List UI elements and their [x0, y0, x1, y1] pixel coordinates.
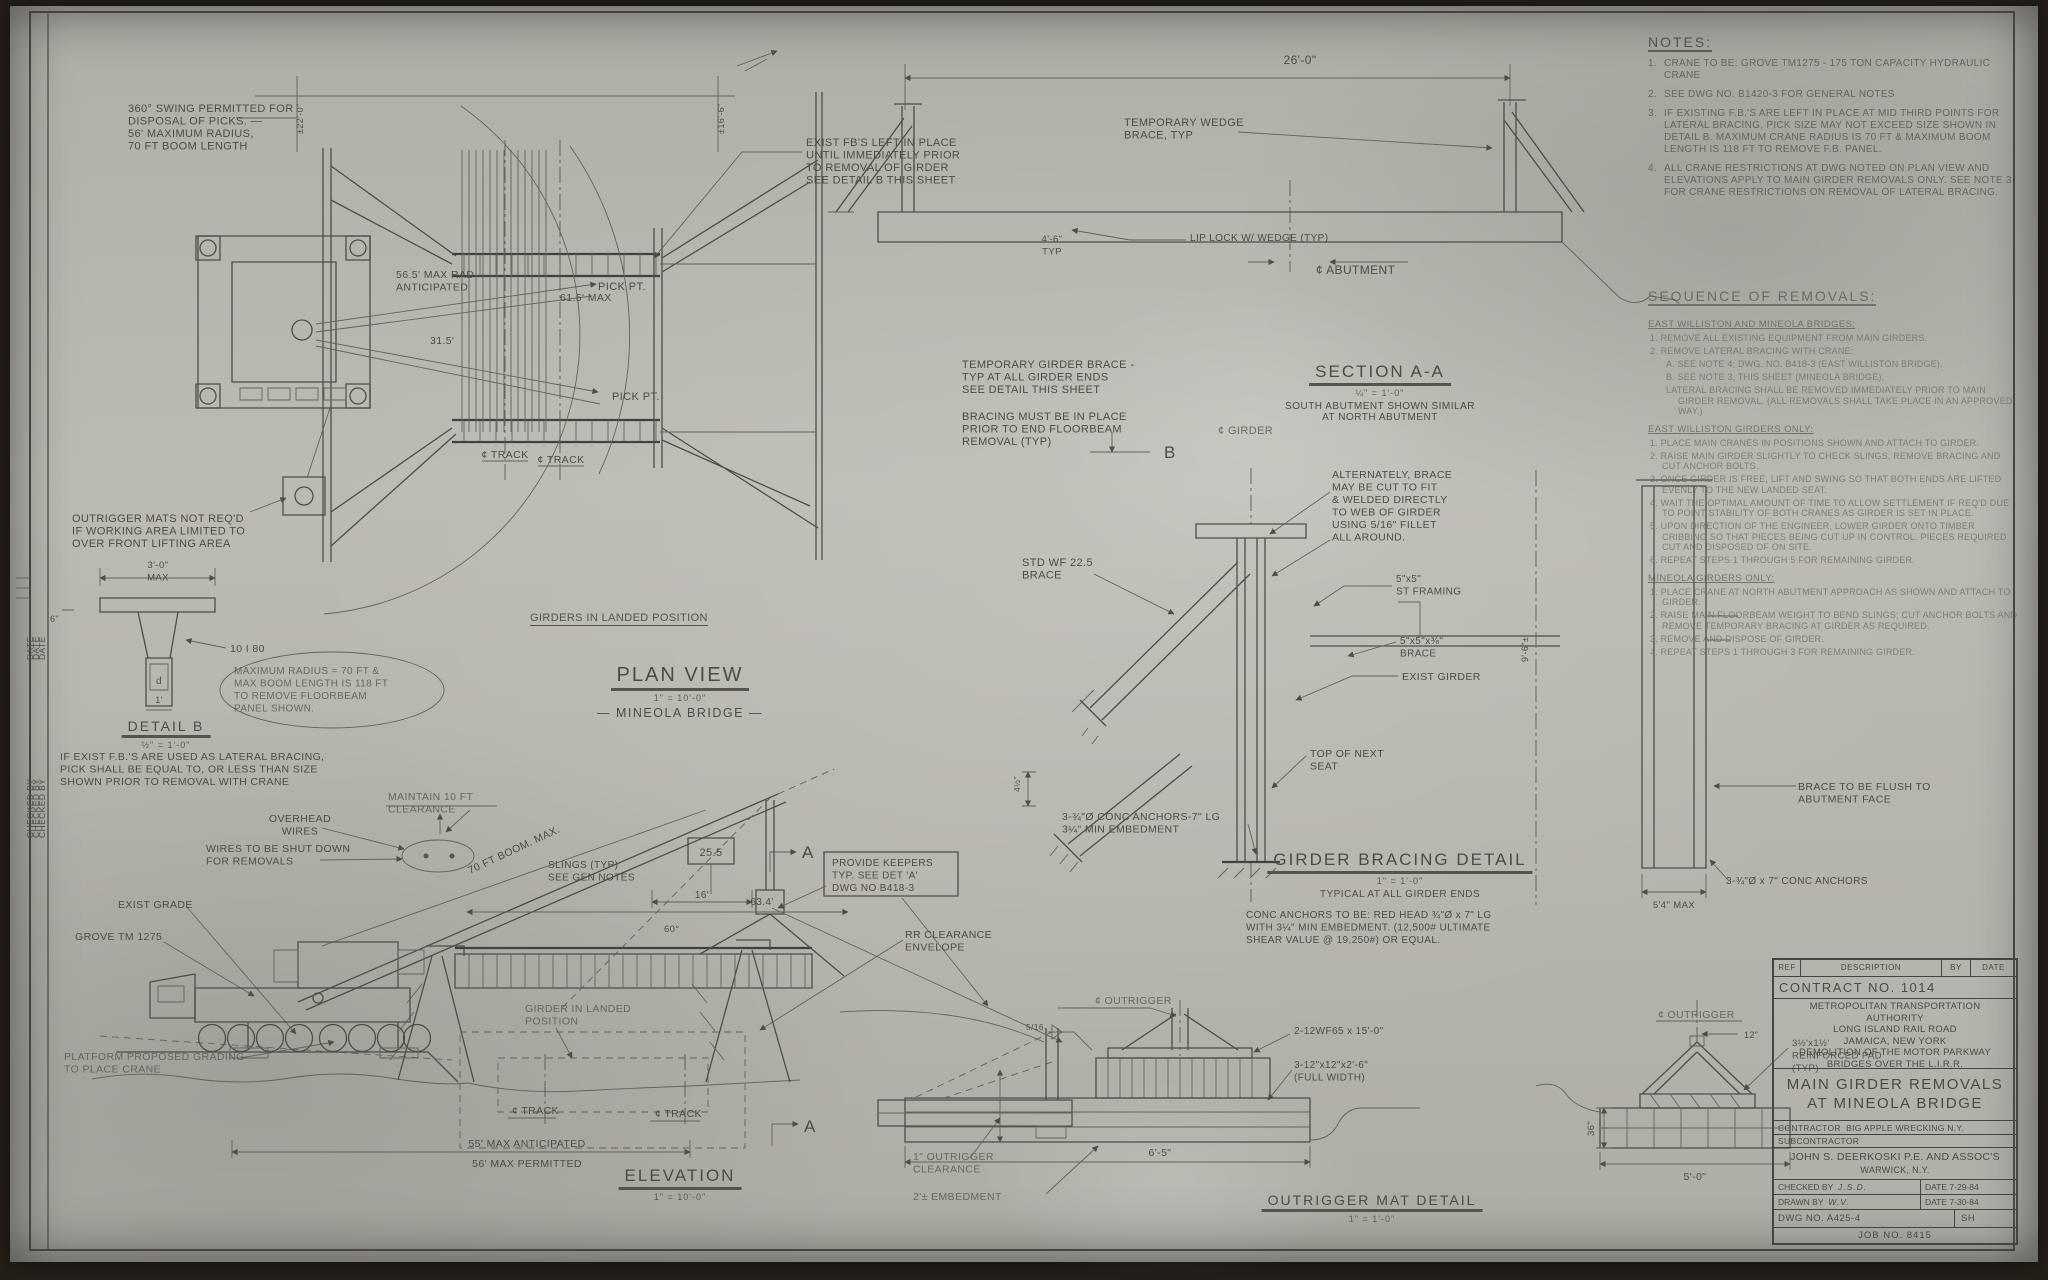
section-aa-drawing — [737, 51, 1676, 452]
blueprint-photo: 360° SWING PERMITTED FORDISPOSAL OF PICK… — [0, 0, 2048, 1272]
callout-label: ALTERNATELY, BRACEMAY BE CUT TO FIT& WEL… — [1332, 469, 1452, 544]
callout-label: 56' MAX PERMITTED — [472, 1158, 582, 1170]
callout-label: 55' MAX ANTICIPATED — [468, 1138, 585, 1150]
callout-label: 2-12WF65 x 15'-0" — [1294, 1026, 1384, 1037]
callout-label: 16' — [695, 890, 709, 901]
notes-panel: NOTES: 1.CRANE TO BE: GROVE TM1275 - 175… — [1648, 34, 2020, 206]
callout-label: A — [802, 843, 814, 862]
callout-label: 31.5' — [430, 335, 454, 347]
callout-label: ¢ OUTRIGGER — [1095, 995, 1172, 1007]
outrigger-pad-detail-drawing — [1536, 1000, 1790, 1170]
callout-label: 5'4" MAX — [1653, 900, 1695, 911]
girder-bracing-detail-title: GIRDER BRACING DETAIL 1" = 1'-0" TYPICAL… — [1267, 850, 1532, 900]
callout-label: PROVIDE KEEPERSTYP. SEE DET 'A'DWG NO B4… — [832, 858, 933, 894]
callout-label: LIP LOCK W/ WEDGE (TYP) — [1190, 233, 1328, 244]
sequence-item: 5. UPON DIRECTION OF THE ENGINEER, LOWER… — [1648, 521, 2020, 553]
callout-label: CHECKED BY — [37, 779, 47, 838]
girder-bracing-detail-drawing — [1022, 468, 1560, 902]
checked-by-row: CHECKED BY J.S.D. DATE 7-29-84 — [1774, 1179, 2016, 1194]
title-block: REF DESCRIPTION BY DATE CONTRACT NO. 101… — [1772, 958, 2018, 1245]
callout-label: 61.5' MAX — [560, 292, 612, 304]
sequence-item: LATERAL BRACING SHALL BE REMOVED IMMEDIA… — [1648, 385, 2020, 417]
callout-label: EXIST GRADE — [118, 899, 193, 911]
callout-label: ¢ TRACK — [482, 449, 529, 461]
callout-label: ¢ ABUTMENT — [1316, 263, 1396, 277]
callout-label: BRACE TO BE FLUSH TOABUTMENT FACE — [1798, 781, 1931, 806]
callout-label: 1" OUTRIGGERCLEARANCE — [913, 1151, 994, 1176]
sequence-item: 3. ONCE GIRDER IS FREE, LIFT AND SWING S… — [1648, 474, 2020, 495]
callout-label: OUTRIGGER MATS NOT REQ'DIF WORKING AREA … — [72, 513, 245, 550]
callout-label: 26'-0" — [1284, 53, 1317, 67]
sequence-body: EAST WILLISTON AND MINEOLA BRIDGES:1. RE… — [1648, 319, 2020, 657]
callout-label: 56.5' MAX RADANTICIPATED — [396, 269, 474, 294]
plan-view-drawing — [196, 76, 822, 614]
sequence-item: 4. REPEAT STEPS 1 THROUGH 3 FOR REMAININ… — [1648, 647, 2020, 658]
dwg-number-row: DWG NO. A425-4 SH — [1774, 1209, 2016, 1227]
callout-label: ¢ TRACK — [538, 454, 585, 466]
callout-label: 6'-5" — [1149, 1147, 1172, 1159]
sequence-item: 1. REMOVE ALL EXISTING EQUIPMENT FROM MA… — [1648, 333, 2020, 344]
note-item: 1.CRANE TO BE: GROVE TM1275 - 175 TON CA… — [1648, 58, 2020, 82]
callout-label: B — [1164, 443, 1176, 462]
elevation-title: ELEVATION 1" = 10'-0" — [619, 1166, 742, 1202]
callout-label: 60° — [664, 924, 680, 935]
callout-label: 4½" — [1012, 776, 1022, 792]
sequence-of-removals-panel: SEQUENCE OF REMOVALS: EAST WILLISTON AND… — [1648, 288, 2020, 660]
callout-label: ¢ TRACK — [655, 1108, 702, 1120]
sequence-item: A. SEE NOTE 4; DWG. NO. B418-3 (EAST WIL… — [1648, 359, 2020, 370]
callout-label: d — [156, 676, 162, 687]
notes-title: NOTES: — [1648, 34, 1712, 52]
callout-label: 25.5 — [699, 847, 722, 859]
sequence-item: 2. REMOVE LATERAL BRACING WITH CRANE: — [1648, 346, 2020, 357]
revision-header-row: REF DESCRIPTION BY DATE — [1774, 960, 2016, 976]
callout-label: MAXIMUM RADIUS = 70 FT &MAX BOOM LENGTH … — [234, 666, 388, 715]
callout-label: PICK PT. — [612, 391, 660, 403]
callout-label: 9'-6"± — [1520, 637, 1530, 662]
agency-block: METROPOLITAN TRANSPORTATION AUTHORITY LO… — [1774, 998, 2016, 1068]
callout-label: 3'-0"MAX — [147, 560, 169, 584]
section-aa-title: SECTION A-A ¼" = 1'-0" SOUTH ABUTMENT SH… — [1285, 362, 1475, 423]
sequence-item: 2. RAISE MAIN FLOORBEAM WEIGHT TO BEND S… — [1648, 610, 2020, 631]
girders-landed-note: GIRDERS IN LANDED POSITION — [530, 612, 708, 626]
callout-label: 3-¾"Ø x 7" CONC ANCHORS — [1726, 876, 1868, 887]
note-item: 2.SEE DWG NO. B1420-3 FOR GENERAL NOTES — [1648, 89, 2020, 101]
sequence-section-heading: EAST WILLISTON AND MINEOLA BRIDGES: — [1648, 319, 2020, 330]
note-item: 4.ALL CRANE RESTRICTIONS AT DWG NOTED ON… — [1648, 163, 2020, 199]
subcontractor-row: SUBCONTRACTOR — [1774, 1134, 2016, 1147]
callout-label: 10 I 80 — [230, 643, 265, 655]
callout-label: STD WF 22.5BRACE — [1022, 557, 1093, 582]
sequence-item: 2. RAISE MAIN GIRDER SLIGHTLY TO CHECK S… — [1648, 451, 2020, 472]
outrigger-mat-detail-title: OUTRIGGER MAT DETAIL 1" = 1'-0" — [1262, 1192, 1483, 1224]
callout-label: PLATFORM PROPOSED GRADINGTO PLACE CRANE — [64, 1051, 245, 1076]
callout-label: DATE — [37, 636, 47, 660]
drawn-by-row: DRAWN BY W.V. DATE 7-30-84 — [1774, 1194, 2016, 1209]
sequence-section-heading: EAST WILLISTON GIRDERS ONLY: — [1648, 424, 2020, 435]
callout-label: 5"x5"x⅜"BRACE — [1400, 636, 1443, 660]
callout-label: TOP OF NEXTSEAT — [1310, 748, 1384, 773]
sequence-item: 1. PLACE MAIN CRANES IN POSITIONS SHOWN … — [1648, 438, 2020, 449]
contract-number: CONTRACT NO. 1014 — [1774, 976, 2016, 998]
callout-label: ±16'-6" — [716, 103, 726, 134]
callout-label: A — [804, 1117, 816, 1136]
job-number-row: JOB NO. 8415 — [1774, 1227, 2016, 1243]
plan-view-title: PLAN VIEW 1" = 10'-0" — MINEOLA BRIDGE — — [597, 664, 763, 720]
callout-label: GROVE TM 1275 — [75, 931, 162, 943]
sequence-item: 6. REPEAT STEPS 1 THROUGH 5 FOR REMAININ… — [1648, 555, 2020, 566]
callout-label: 360° SWING PERMITTED FORDISPOSAL OF PICK… — [128, 103, 294, 153]
callout-label: 1' — [155, 695, 163, 705]
callout-label: OVERHEADWIRES — [269, 813, 331, 838]
sequence-item: B. SEE NOTE 3, THIS SHEET (MINEOLA BRIDG… — [1648, 372, 2020, 383]
engineer-row: JOHN S. DEERKOSKI P.E. AND ASSOC'S WARWI… — [1774, 1147, 2016, 1179]
callout-label: ¢ TRACK — [512, 1105, 559, 1117]
sequence-item: 1. PLACE CRANE AT NORTH ABUTMENT APPROAC… — [1648, 587, 2020, 608]
callout-label: 4'-6"TYP — [1042, 234, 1063, 258]
callout-label: 3-¾"Ø CONC ANCHORS-7" LG3¼" MIN EMBEDMEN… — [1062, 811, 1220, 836]
callout-label: ¢ OUTRIGGER — [1658, 1009, 1735, 1021]
detail-b-title: DETAIL B ½" = 1'-0" — [122, 718, 211, 750]
callout-label: ±22'-0" — [295, 103, 305, 134]
sequence-item: 3. REMOVE AND DISPOSE OF GIRDER. — [1648, 634, 2020, 645]
callout-label: 2'± EMBEDMENT — [913, 1191, 1002, 1203]
note-item: 3.IF EXISTING F.B.'S ARE LEFT IN PLACE A… — [1648, 108, 2020, 156]
contractor-row: CONTRACTOR BIG APPLE WRECKING N.Y. — [1774, 1120, 2016, 1134]
callout-label: TEMPORARY GIRDER BRACE -TYP AT ALL GIRDE… — [962, 359, 1134, 396]
callout-label: EXIST FB'S LEFT IN PLACEUNTIL IMMEDIATEL… — [806, 137, 960, 187]
callout-label: CONC ANCHORS TO BE: RED HEAD ¾"Ø x 7" LG… — [1246, 910, 1492, 946]
sequence-section-heading: MINEOLA GIRDERS ONLY: — [1648, 573, 2020, 584]
callout-label: 63.4' — [750, 897, 773, 908]
left-margin-strip — [16, 12, 48, 1250]
callout-label: RR CLEARANCEENVELOPE — [905, 929, 992, 954]
sequence-item: 4. WAIT THE OPTIMAL AMOUNT OF TIME TO AL… — [1648, 498, 2020, 519]
callout-label: BRACING MUST BE IN PLACEPRIOR TO END FLO… — [962, 411, 1127, 448]
callout-label: GIRDER IN LANDEDPOSITION — [525, 1003, 631, 1028]
callout-label: IF EXIST F.B.'S ARE USED AS LATERAL BRAC… — [60, 751, 324, 788]
callout-label: 5/16 — [1026, 1022, 1044, 1032]
callout-label: EXIST GIRDER — [1402, 671, 1481, 683]
drawing-title: MAIN GIRDER REMOVALS AT MINEOLA BRIDGE — [1774, 1068, 2016, 1120]
callout-label: 6" — [50, 614, 59, 624]
callout-label: 36" — [1586, 1121, 1597, 1136]
sequence-title: SEQUENCE OF REMOVALS: — [1648, 288, 1876, 306]
callout-label: WIRES TO BE SHUT DOWNFOR REMOVALS — [206, 843, 350, 868]
callout-label: 5'-0" — [1684, 1171, 1707, 1183]
callout-label: 12" — [1744, 1030, 1758, 1040]
callout-label: 5"x5"ST FRAMING — [1396, 574, 1461, 598]
callout-label: TEMPORARY WEDGEBRACE, TYP — [1124, 117, 1244, 142]
callout-label: MAINTAIN 10 FTCLEARANCE — [388, 791, 474, 816]
callout-label: ¢ GIRDER — [1218, 425, 1273, 437]
callout-label: SLINGS (TYP)SEE GEN NOTES — [548, 860, 635, 884]
callout-label: 3-12"x12"x2'-6"(FULL WIDTH) — [1294, 1060, 1368, 1084]
